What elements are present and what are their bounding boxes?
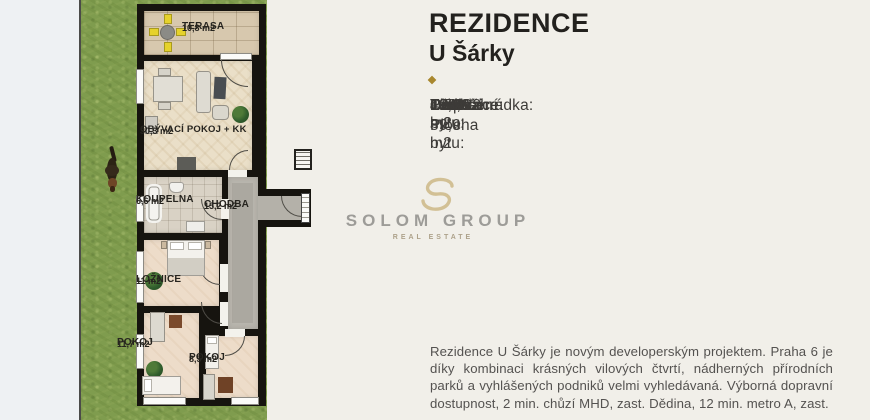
page-title: REZIDENCE [429, 8, 590, 39]
solom-group-logo-icon [414, 176, 462, 214]
plant-icon [232, 106, 249, 123]
room-area: 11 m2 [136, 276, 161, 286]
desk [218, 377, 233, 393]
sofa [196, 71, 211, 113]
detail-value: 134,3 m2 [430, 97, 470, 133]
nightstand [205, 241, 211, 249]
terrace-chair [164, 42, 172, 52]
terrace-chair [164, 14, 172, 24]
pillow [144, 379, 152, 392]
terrace-door-window [220, 53, 252, 60]
kitchen-island [177, 157, 196, 170]
room-area: 11,7 m2 [117, 339, 150, 349]
dog [101, 146, 123, 194]
window-pokoj85-south [231, 397, 259, 405]
terrace-chair [149, 28, 159, 36]
gold-divider [429, 75, 570, 84]
window-living [136, 69, 144, 104]
watermark-name: SOLOM GROUP [340, 211, 536, 231]
page-subtitle: U Šárky [429, 40, 515, 67]
window-pokoj117-south [143, 397, 186, 405]
door-gap-loznice [220, 264, 228, 292]
tv [213, 77, 226, 100]
blanket [168, 258, 204, 275]
pillow [207, 337, 217, 344]
pillow [188, 242, 202, 250]
desk-chair [169, 315, 182, 328]
project-description: Rezidence U Šárky je novým developerským… [430, 343, 833, 412]
diamond-icon [428, 75, 436, 83]
watermark-subtitle: REAL ESTATE [340, 234, 526, 241]
dog-shoulders [105, 165, 119, 176]
room-area: 30,3 m2 [140, 126, 173, 136]
room-area: 6,6 m2 [136, 196, 164, 206]
left-margin-panel [0, 0, 79, 420]
room-area: 8,5 m2 [189, 354, 217, 364]
flyer-canvas: TERASA 10,8 m2 OBÝVACÍ POKOJ + KK 30,3 m… [0, 0, 870, 420]
dining-chair [158, 102, 171, 110]
room-area: 10,8 m2 [182, 23, 215, 33]
room-area: 15,2 m2 [204, 201, 237, 211]
terrace-table [160, 25, 175, 40]
dog-snout [110, 186, 115, 192]
dining-chair [158, 68, 171, 76]
door-gap-living [228, 170, 247, 177]
pillow [170, 242, 184, 250]
entrance-door [301, 193, 310, 223]
toilet [169, 182, 184, 193]
washer [186, 221, 205, 232]
wardrobe [203, 374, 215, 400]
armchair [212, 105, 229, 120]
utility-box [294, 149, 312, 170]
dining-table [153, 76, 183, 102]
nightstand [161, 241, 167, 249]
